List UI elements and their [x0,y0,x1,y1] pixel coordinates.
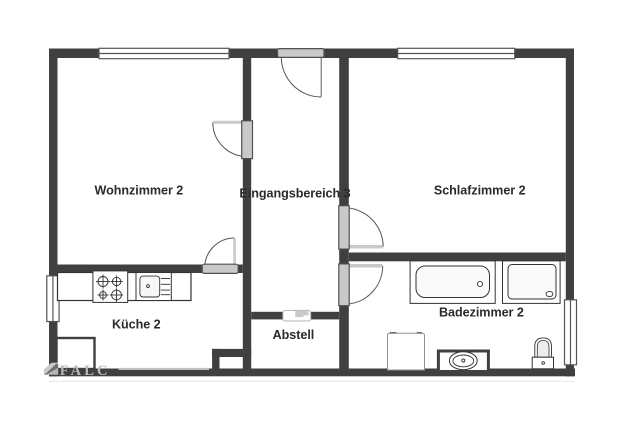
svg-text:Badezimmer 2: Badezimmer 2 [439,306,524,320]
svg-text:FALC: FALC [60,363,111,379]
svg-text:Abstell: Abstell [273,328,315,342]
svg-text:Wohnzimmer 2: Wohnzimmer 2 [95,183,184,197]
svg-text:Eingangsbereich 3: Eingangsbereich 3 [239,186,350,200]
svg-text:Schlafzimmer 2: Schlafzimmer 2 [434,184,526,198]
svg-text:Küche 2: Küche 2 [112,317,161,331]
